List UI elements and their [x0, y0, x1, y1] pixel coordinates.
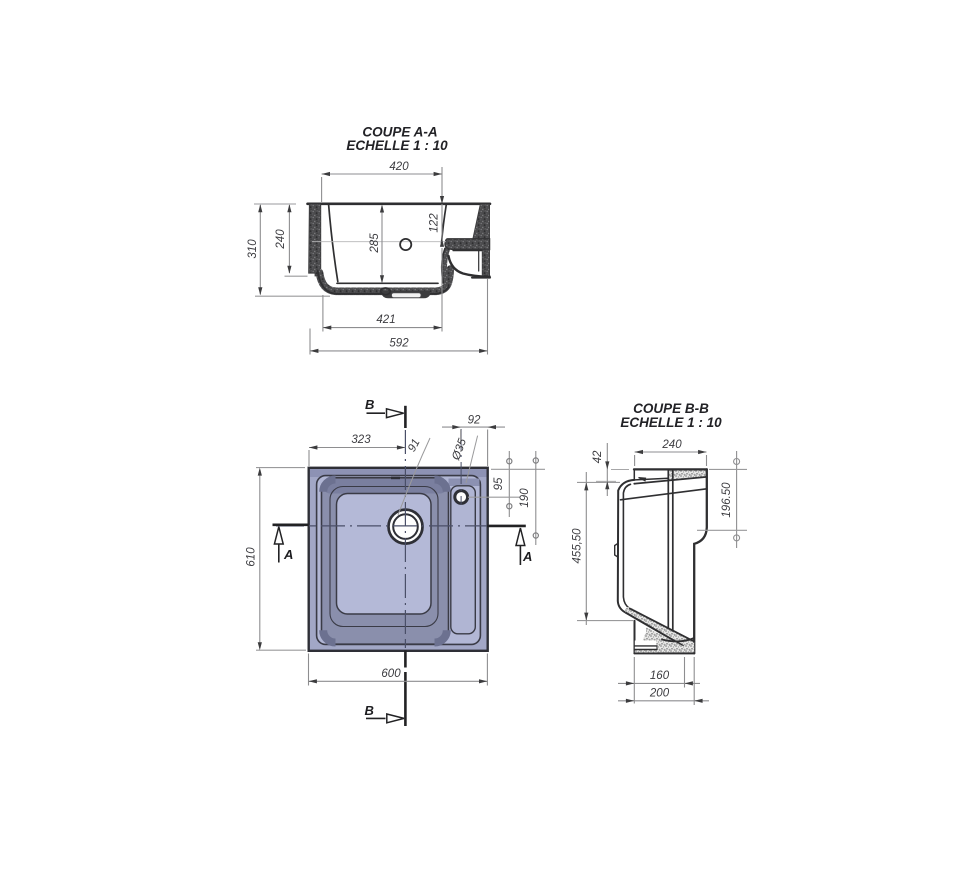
svg-text:A: A [283, 547, 293, 562]
svg-text:B: B [365, 397, 374, 412]
svg-text:160: 160 [650, 670, 670, 682]
svg-text:240: 240 [275, 229, 287, 250]
svg-text:Ø35: Ø35 [450, 437, 469, 463]
svg-text:B: B [365, 703, 374, 718]
svg-text:ECHELLE 1 : 10: ECHELLE 1 : 10 [346, 138, 448, 153]
svg-text:200: 200 [649, 688, 670, 700]
svg-text:600: 600 [381, 668, 401, 680]
svg-text:455,50: 455,50 [572, 528, 584, 564]
svg-text:COUPE B-B: COUPE B-B [633, 401, 709, 416]
svg-text:42: 42 [592, 450, 604, 463]
svg-text:323: 323 [351, 434, 371, 446]
svg-text:A: A [522, 549, 532, 564]
svg-text:92: 92 [468, 415, 481, 427]
svg-text:95: 95 [493, 477, 505, 490]
svg-text:ECHELLE 1 : 10: ECHELLE 1 : 10 [620, 415, 722, 430]
svg-text:190: 190 [519, 488, 531, 508]
svg-text:610: 610 [246, 547, 258, 567]
svg-text:421: 421 [376, 314, 395, 326]
svg-text:592: 592 [389, 338, 409, 350]
svg-text:240: 240 [661, 439, 682, 451]
svg-text:196.50: 196.50 [721, 482, 733, 518]
svg-text:310: 310 [247, 239, 259, 259]
svg-text:285: 285 [369, 233, 381, 254]
svg-text:420: 420 [389, 161, 409, 173]
svg-text:91: 91 [406, 437, 423, 454]
svg-text:122: 122 [429, 213, 441, 233]
